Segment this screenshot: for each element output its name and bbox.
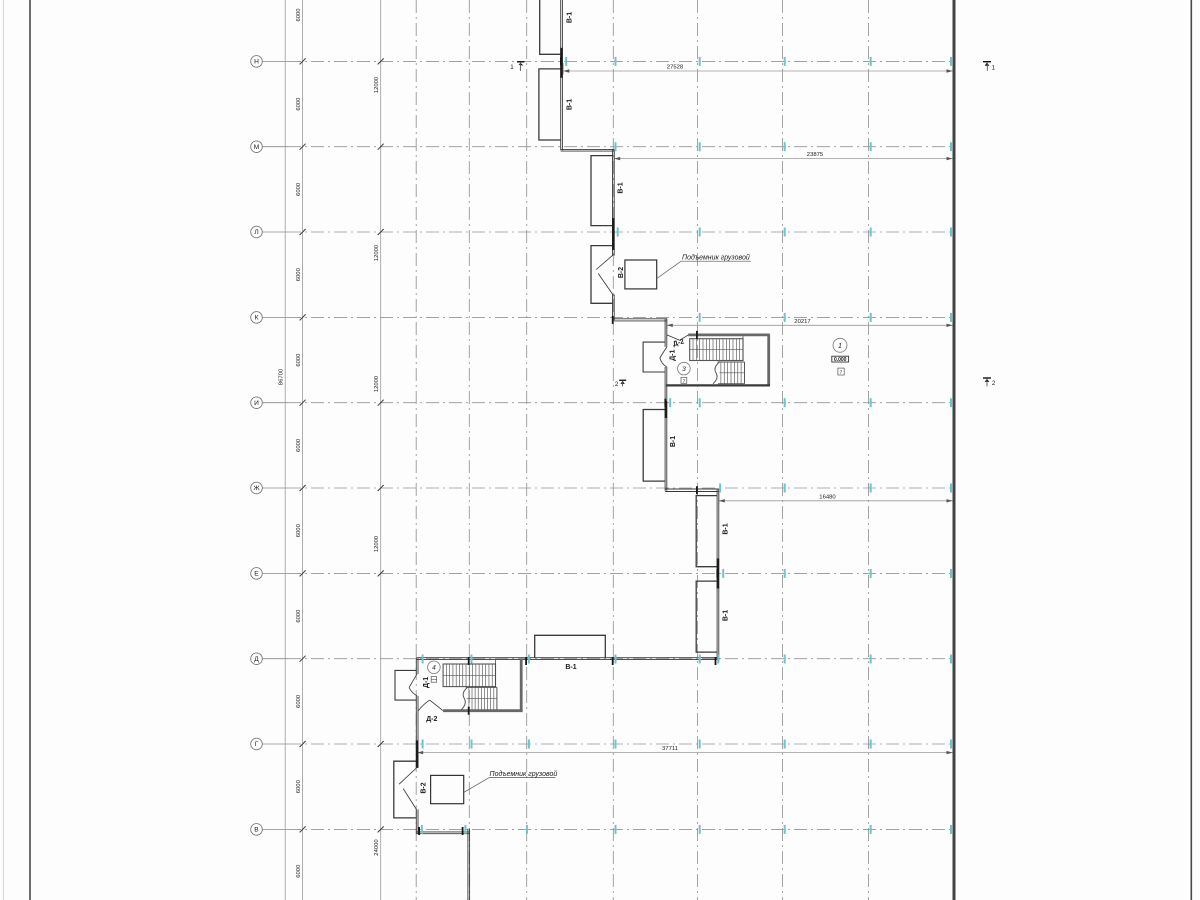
svg-text:1: 1 [992, 65, 996, 72]
svg-text:6000: 6000 [296, 267, 302, 281]
svg-text:27528: 27528 [667, 65, 684, 71]
svg-text:12000: 12000 [374, 76, 380, 93]
svg-text:6000: 6000 [296, 182, 302, 196]
svg-text:В-1: В-1 [670, 436, 677, 447]
svg-text:Г: Г [255, 741, 259, 748]
svg-text:6000: 6000 [296, 97, 302, 111]
svg-text:Д-1: Д-1 [670, 349, 677, 360]
svg-text:И: И [254, 400, 259, 407]
svg-text:6000: 6000 [296, 438, 302, 452]
svg-text:В: В [254, 827, 259, 834]
svg-text:2: 2 [615, 381, 619, 388]
svg-text:Подъемник грузовой: Подъемник грузовой [490, 770, 558, 778]
svg-text:Л: Л [254, 229, 258, 236]
svg-text:Ж: Ж [253, 485, 259, 492]
svg-text:7: 7 [683, 378, 686, 384]
svg-text:К: К [255, 315, 259, 322]
svg-text:6000: 6000 [296, 864, 302, 878]
svg-text:20217: 20217 [794, 319, 810, 325]
svg-text:12000: 12000 [374, 535, 380, 552]
svg-text:6000: 6000 [296, 609, 302, 623]
svg-text:Д: Д [254, 656, 259, 663]
svg-text:1: 1 [838, 343, 842, 350]
svg-text:Е: Е [254, 571, 259, 578]
svg-text:6000: 6000 [296, 779, 302, 793]
svg-text:16480: 16480 [819, 494, 836, 500]
svg-text:0.000: 0.000 [834, 357, 847, 363]
svg-text:2: 2 [992, 380, 996, 387]
svg-text:7: 7 [840, 370, 843, 376]
svg-text:Н: Н [254, 59, 259, 66]
svg-text:6000: 6000 [296, 694, 302, 708]
svg-text:В-1: В-1 [565, 664, 576, 671]
svg-text:12000: 12000 [374, 244, 380, 261]
svg-text:37711: 37711 [662, 746, 678, 752]
svg-text:В-2: В-2 [420, 782, 427, 793]
svg-text:В-1: В-1 [567, 99, 574, 110]
svg-text:12000: 12000 [374, 375, 380, 392]
svg-text:4: 4 [432, 665, 436, 672]
svg-text:23875: 23875 [807, 152, 824, 158]
svg-text:В-1: В-1 [618, 182, 625, 193]
svg-text:Д-1: Д-1 [423, 677, 430, 688]
svg-text:В-2: В-2 [618, 267, 625, 278]
svg-text:3: 3 [682, 366, 686, 373]
svg-text:В-1: В-1 [567, 12, 574, 23]
svg-text:24000: 24000 [374, 839, 380, 856]
svg-text:86700: 86700 [279, 368, 285, 385]
svg-text:В-1: В-1 [723, 610, 730, 621]
svg-text:Д-2: Д-2 [426, 716, 437, 723]
svg-text:М: М [254, 144, 260, 151]
svg-text:В-1: В-1 [723, 523, 730, 534]
svg-text:Подъемник грузовой: Подъемник грузовой [682, 254, 750, 262]
svg-text:6000: 6000 [296, 353, 302, 367]
svg-text:1: 1 [510, 64, 514, 71]
svg-text:6000: 6000 [296, 8, 302, 22]
svg-text:6000: 6000 [296, 523, 302, 537]
